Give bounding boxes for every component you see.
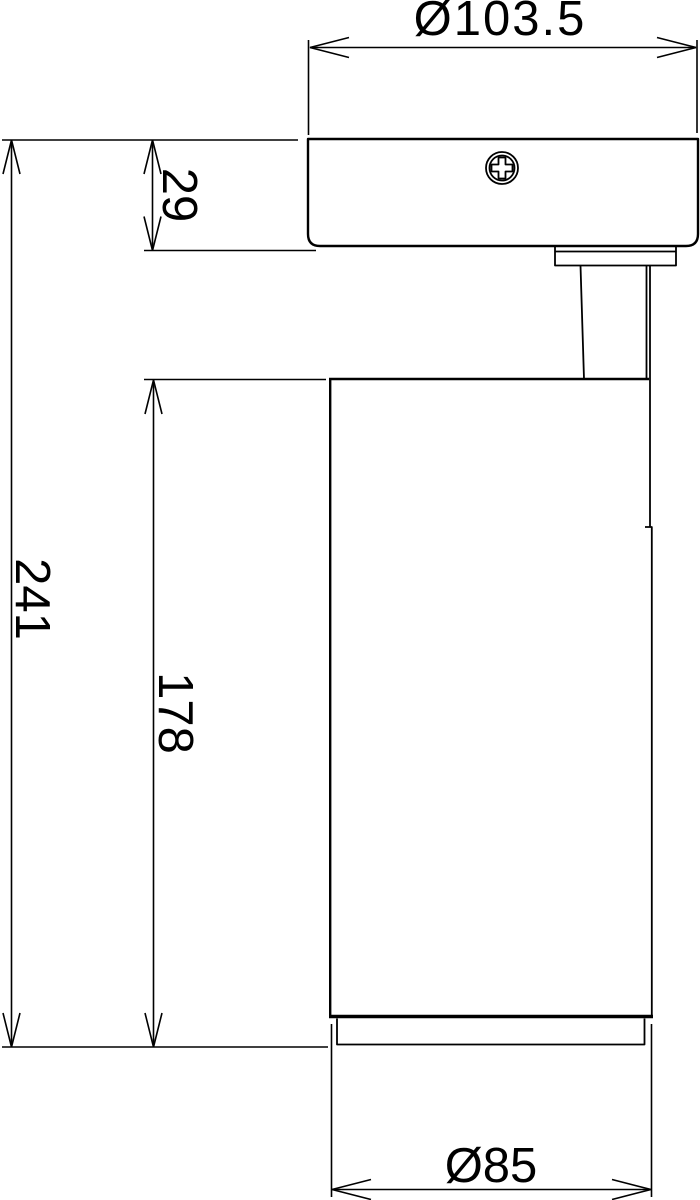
luminaire-outline <box>308 139 698 1045</box>
dim-label-canopy-height: 29 <box>152 168 206 223</box>
body-right-edge-step <box>645 527 652 1016</box>
dim-label-overall-height: 241 <box>5 558 59 640</box>
dim-body-diameter: Ø85 <box>332 1024 652 1200</box>
dim-canopy-diameter: Ø103.5 <box>309 0 698 135</box>
stem-left-edge <box>581 266 585 380</box>
dim-canopy-height: 29 <box>144 140 316 251</box>
dim-body-height: 178 <box>144 380 326 1048</box>
dim-label-body-diameter: Ø85 <box>445 1139 538 1193</box>
mounting-screw-icon <box>486 152 518 184</box>
dim-label-body-height: 178 <box>148 672 202 754</box>
stem <box>581 266 651 528</box>
flange-sides <box>555 246 676 266</box>
dim-label-canopy-diameter: Ø103.5 <box>414 0 587 46</box>
lamp-bezel <box>337 1019 645 1045</box>
technical-drawing-canvas: Ø103.5 241 29 178 Ø85 <box>0 0 700 1200</box>
dim-overall-height: 241 <box>2 140 328 1047</box>
lamp-body <box>329 379 653 1017</box>
screw-inner-ring <box>490 156 515 181</box>
screw-cross-slot <box>492 158 513 179</box>
canopy-flange <box>555 246 676 266</box>
